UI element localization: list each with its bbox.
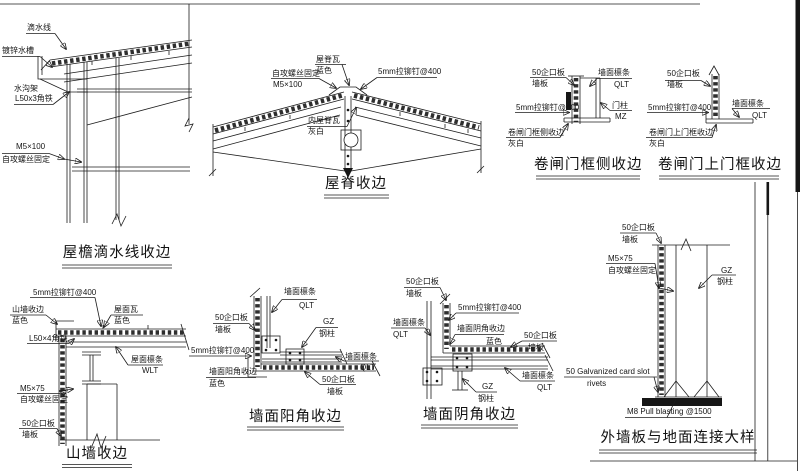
label-rivet: 5mm拉铆钉@400 [378,67,441,76]
label-board: 50企口板 [622,223,655,232]
label-rivets: rivets [587,379,606,388]
label-purlin-top-code: QLT [299,301,314,310]
label-board-top: 50企口板 [406,277,439,286]
detail-title-outer-corner: 墙面阳角收边 [249,409,341,426]
label-panel-top: 墙板 [406,289,422,298]
label-roof-purlin: 屋面檩条 [131,355,163,364]
label-column-name: 钢柱 [717,277,733,286]
drawing-sheet: 滴水线 镀锌水槽 水沟架 L50x3角铁 M5×100 自攻螺丝固定 屋檐滴水线… [0,0,800,471]
label-trim: 墙面阴角收边 [457,324,505,333]
label-board: 50企口板 [667,69,700,78]
detail-title-eave: 屋檐滴水线收边 [62,245,172,262]
label-column-name: 钢柱 [478,394,494,403]
label-rivet: 5mm拉铆钉@400 [458,303,521,312]
label-screw-size: M5×75 [608,254,633,263]
label-purlin-bottom-code: QLT [537,383,552,392]
label-roof-tile: 屋面瓦 [114,305,138,314]
detail-title-inner-corner: 墙面阴角收边 [423,407,515,424]
label-trim-color: 蓝色 [486,337,502,346]
label-drip-line: 滴水线 [27,23,51,32]
label-trim: 卷闸门框侧收边 [508,128,564,137]
label-screw-fix: 自攻螺丝固定 [20,395,68,404]
detail-eave-linework [2,4,193,268]
label-purlin-code: QLT [752,111,767,120]
label-panel-left: 墙板 [215,325,231,334]
label-panel-right: 墙板 [528,343,544,352]
label-wall-panel: 墙板 [22,430,38,439]
label-purlin-right-code: QLT [360,363,375,372]
detail-gable-linework [10,298,189,468]
label-board-bottom: 50企口板 [322,375,355,384]
detail-title-ground: 外墙板与地面连接大样 [599,430,757,447]
label-column-code: GZ [482,382,493,391]
label-purlin-code: WLT [142,366,158,375]
detail-title-door-side: 卷闸门框侧收边 [534,157,640,174]
label-screw-fix: 自攻螺丝固定 [608,266,656,275]
label-purlin-top: 墙面檩条 [284,287,316,296]
label-gutter-bracket: 水沟架 [14,84,38,93]
label-screw-fix: 自攻螺丝固定 [2,155,50,164]
label-trim: 墙面阳角收边 [209,367,257,376]
label-wall-panel: 墙板 [622,235,638,244]
label-trim-color: 灰白 [508,139,524,148]
label-column-code: GZ [323,317,334,326]
label-board-left: 50企口板 [215,313,248,322]
label-board: 50企口板 [532,68,565,77]
label-door-post: 门柱 [612,101,628,110]
label-trim-color: 蓝色 [12,316,28,325]
label-trim: 山墙收边 [12,305,44,314]
label-purlin-bottom: 墙面檩条 [522,371,554,380]
label-wall-purlin: 墙面檩条 [598,68,630,77]
label-anchor-bolt: M8 Pull blasting @1500 [627,407,712,416]
label-screw-size: M5×100 [273,80,302,89]
label-inner-tile-color: 灰白 [308,127,324,136]
label-purlin-left: 墙面檩条 [393,318,425,327]
label-wall-panel: 墙板 [532,79,548,88]
label-panel-bottom: 墙板 [327,387,343,396]
label-wall-purlin: 墙面檩条 [732,99,764,108]
label-tile-color: 蓝色 [114,316,130,325]
label-column-code: GZ [721,266,732,275]
label-purlin-left-code: QLT [393,330,408,339]
label-galv-gutter: 镀锌水槽 [2,46,34,55]
label-trim: 卷闸门上门框收边 [649,128,713,137]
label-rivet: 5mm拉铆钉@400 [33,288,96,297]
label-trim-color: 蓝色 [209,379,225,388]
label-ridge-tile: 屋脊瓦 [316,55,340,64]
label-angle-iron: L50×4角铁 [29,334,67,343]
label-trim-color: 灰白 [649,139,665,148]
label-inner-tile: 内屋脊瓦 [308,116,340,125]
label-purlin-right: 墙面檩条 [345,352,377,361]
label-wall-panel: 墙板 [667,80,683,89]
label-purlin-code: QLT [614,80,629,89]
label-screw-size: M5×75 [20,384,45,393]
detail-title-ridge: 屋脊收边 [323,176,389,193]
label-angle-iron: L50x3角铁 [15,94,53,103]
label-screw-fix: 自攻螺丝固定 [272,69,320,78]
label-board: 50企口板 [22,419,55,428]
label-post-code: MZ [615,112,627,121]
label-galv-slot: 50 Galvanized card slot [566,367,650,376]
label-rivet: 5mm拉铆钉@400 [516,103,579,112]
detail-title-gable: 山墙收边 [64,446,130,463]
label-column-name: 钢柱 [319,329,335,338]
label-rivet: 5mm拉铆钉@400 [648,103,711,112]
label-board-right: 50企口板 [524,331,557,340]
label-screw-size: M5×100 [16,142,45,151]
detail-title-door-top: 卷闸门上门框收边 [658,157,780,174]
label-rivet: 5mm拉铆钉@400 [191,346,254,355]
